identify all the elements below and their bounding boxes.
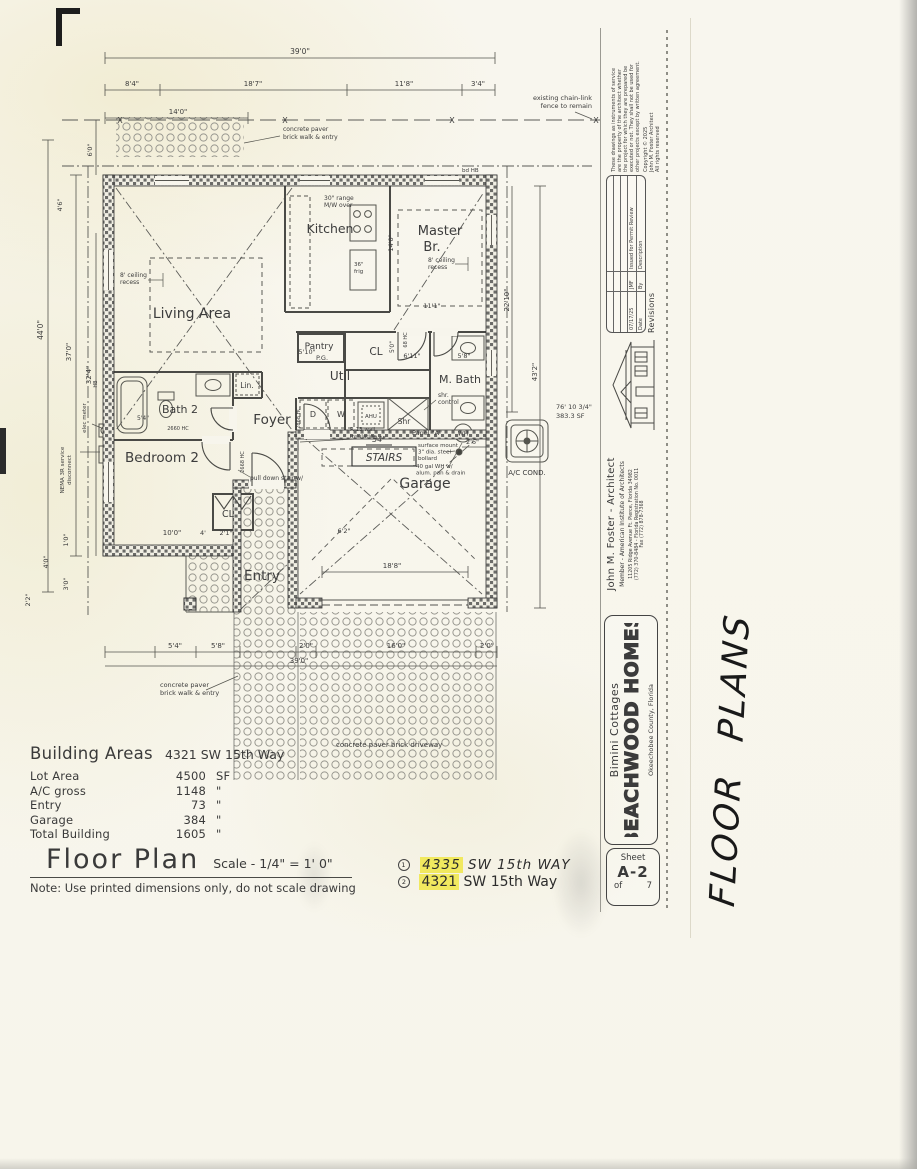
room-label-entry: Entry (244, 568, 280, 584)
revisions-empty-row (607, 176, 614, 332)
address-1-highlighted: 4335 (420, 857, 462, 873)
building-areas-title: Building Areas (30, 744, 153, 763)
room-label-closet-2: CL (222, 509, 235, 520)
building-area-row: Entry 73 " (30, 798, 370, 813)
dim-closet-2: 4' (200, 529, 206, 537)
note-recess-living-2: recess (120, 279, 139, 286)
room-label-master-1: Master (418, 224, 463, 239)
dim-bottom-d: 16'0" (387, 642, 406, 650)
copyright-line: other projects except by written agreeme… (636, 32, 642, 172)
dim-right-c: 76' 10 3/4" (556, 403, 592, 411)
dim-left-e: 32'4" (85, 366, 93, 385)
note-walk-top-2: brick walk & entry (283, 134, 338, 141)
label-ahu: AHU (365, 414, 377, 420)
note-frig-1: 36" (354, 262, 364, 268)
note-walk-bottom-2: brick walk & entry (160, 689, 219, 697)
note-fence-2: fence to remain (541, 102, 592, 110)
note-range-1: 30" range (324, 195, 354, 202)
door-tag: 2660 HC (167, 426, 189, 432)
dim-bedroom-width: 10'0" (163, 529, 182, 537)
note-shower-control-2: control (438, 399, 459, 406)
note-hb-left: HB (93, 380, 99, 388)
room-label-master-2: Br. (423, 240, 440, 255)
note-pulldown-stair: pull down stair w/ (250, 475, 304, 482)
room-label-master-bath: M. Bath (439, 373, 481, 386)
dim-closet-2b: 2'1" (219, 529, 232, 537)
svg-text:BEACHWOOD HOMES: BEACHWOOD HOMES (621, 623, 643, 837)
note-hb-top: bd HB (462, 168, 479, 174)
house-elevation-icon (604, 338, 660, 432)
dim-hall: 6'11" (403, 352, 420, 360)
area-value: 1605 (158, 827, 206, 842)
area-unit: SF (206, 769, 242, 784)
note-elec-meter: elec meter (82, 402, 88, 432)
fence-x-mark: X (593, 116, 599, 125)
architect-membership: Member - American Institute of Architect… (619, 436, 626, 612)
dim-top-d: 3'4" (471, 80, 485, 88)
label-ac-condenser: A/C COND. (508, 469, 546, 477)
floor-plan-note: Note: Use printed dimensions only, do no… (30, 881, 370, 895)
address-list: 1 4335 SW 15th WAY 2 4321 SW 15th Way (398, 857, 648, 890)
room-label-living-area: Living Area (153, 306, 231, 322)
dim-overall-width: 39'0" (290, 47, 310, 56)
dim-right-d: 383.3 SF (556, 412, 585, 420)
dim-left-b: 4'6" (56, 198, 64, 211)
area-label: A/C gross (30, 784, 158, 799)
building-area-row: Total Building 1605 " (30, 827, 370, 842)
note-water-heater-2: alum. pan & drain (416, 471, 466, 477)
dim-top-b: 18'7" (244, 80, 263, 88)
room-label-pg: P.G. (316, 354, 328, 362)
fence-x-mark: X (117, 116, 123, 125)
address-2-number-icon: 2 (398, 876, 410, 888)
area-value: 73 (158, 798, 206, 813)
revision-date: 07/17/25 (628, 291, 636, 332)
area-label: Garage (30, 813, 158, 828)
note-shower-control-1: shr. (438, 392, 449, 399)
dim-left-c: 44'0" (36, 320, 45, 340)
revisions-data-row: 07/17/25 JMF Issued for Permit Review (628, 176, 637, 332)
address-item-2: 2 4321 SW 15th Way (398, 874, 648, 890)
dim-left-h: 3'0" (62, 577, 70, 590)
dim-master: 11'1" (423, 302, 440, 310)
note-water-heater-1: 40 gal WH w/ (416, 464, 453, 470)
dim-left-g: 4'0" (42, 555, 50, 568)
label-water-heater: WH (458, 431, 468, 438)
dim-bath2: 5'4" (137, 415, 149, 422)
titleblock-divider (600, 28, 601, 912)
note-recess-living-1: 8' ceiling (120, 272, 147, 279)
dim-left-i: 2'2" (24, 593, 32, 606)
area-label: Total Building (30, 827, 158, 842)
room-label-shower: Shr (398, 417, 412, 426)
room-label-foyer: Foyer (253, 412, 291, 428)
revisions-empty-row (621, 176, 628, 332)
label-washer: W (337, 410, 345, 419)
label-dryer: D (310, 410, 316, 419)
area-unit: " (206, 798, 242, 813)
title-underline (30, 877, 352, 878)
dim-top-a: 8'4" (125, 80, 139, 88)
area-label: Entry (30, 798, 158, 813)
room-label-util: Util (330, 369, 350, 383)
dim-right-b: 43'2" (531, 363, 539, 382)
room-label-bedroom-2: Bedroom 2 (125, 450, 199, 466)
dim-closet: 5'0" (389, 341, 396, 353)
address-2-text: SW 15th Way (464, 874, 558, 890)
project-location: Okeechobee County, Florida (647, 620, 655, 840)
building-areas-address: 4321 SW 15th Way (165, 747, 284, 762)
revisions-empty-row (614, 176, 621, 332)
address-2-highlighted: 4321 (419, 874, 459, 890)
dim-bottom-b: 5'8" (211, 642, 225, 650)
site-lines (62, 112, 600, 615)
area-label: Lot Area (30, 769, 158, 784)
area-unit: " (206, 827, 242, 842)
copyright-line: All rights reserved (656, 32, 662, 172)
scanned-floor-plan-sheet: 39'0" 8'4" 18'7" 11'8" 3'4" 14'0" existi… (0, 0, 917, 1169)
building-area-row: A/C gross 1148 " (30, 784, 370, 799)
door-tag: 68 HC (403, 332, 409, 348)
revisions-col-date: Date (637, 291, 645, 332)
project-title-outline: BEACHWOOD HOMES (621, 623, 643, 837)
note-insulation-1: R-13 wall (350, 427, 376, 433)
titleblock-copyright: These drawings as instruments of service… (612, 32, 658, 172)
note-recess-master-1: 8' ceiling (428, 257, 455, 264)
room-label-kitchen: Kitchen (307, 221, 354, 236)
dim-right-a: 22'10" (503, 289, 511, 312)
area-value: 1148 (158, 784, 206, 799)
note-panel-a: Panel "A" (412, 429, 442, 437)
dim-top-e: 14'0" (169, 108, 188, 116)
area-value: 4500 (158, 769, 206, 784)
project-subtitle: Bimini Cottages (608, 620, 621, 840)
dim-foyer: 5'10" (298, 348, 315, 356)
revisions-col-by: By (637, 271, 645, 291)
note-nema-1: NEMA 3R service (60, 446, 66, 493)
room-label-garage: Garage (399, 476, 450, 492)
area-unit: " (206, 784, 242, 799)
dim-bottom-overall: 39'0" (290, 657, 309, 665)
architect-name: John M. Foster - Architect (606, 436, 618, 612)
address-1-text: SW 15th WAY (468, 857, 571, 873)
note-bollard-3: bollard (418, 456, 437, 462)
address-item-1: 1 4335 SW 15th WAY (398, 857, 648, 873)
perforation-line (666, 30, 668, 910)
dim-bottom-e: 2'0" (480, 642, 494, 650)
room-label-bath-2: Bath 2 (162, 403, 198, 416)
dim-right-e: 2'6" (466, 438, 479, 446)
dim-garage-door: 18'8" (383, 562, 402, 570)
note-bollard-2: 3" dia. steel (418, 450, 451, 456)
building-areas-block: Building Areas 4321 SW 15th Way Lot Area… (30, 744, 370, 895)
floor-plan-title: Floor Plan (46, 844, 199, 875)
revision-description: Issued for Permit Review (628, 176, 636, 271)
revisions-title: Revisions (647, 175, 656, 333)
dim-kitchen-depth: 14'0" (387, 234, 395, 251)
room-label-stairs-handwritten: STAIRS (366, 452, 403, 464)
architect-fax: Fax (772) 878-7368 (640, 436, 646, 612)
fence-x-mark: X (282, 116, 288, 125)
building-area-row: Lot Area 4500 SF (30, 769, 370, 784)
door-tag: 2668 HC (240, 451, 246, 473)
titleblock-architect: John M. Foster - Architect Member - Amer… (606, 436, 660, 612)
note-range-2: M/W over (324, 202, 353, 209)
area-value: 384 (158, 813, 206, 828)
room-label-linen: Lin. (240, 381, 253, 390)
room-label-closet: CL (369, 346, 382, 358)
floor-plan-scale: Scale - 1/4" = 1' 0" (213, 856, 332, 871)
titleblock-project: Bimini Cottages BEACHWOOD HOMES Okeechob… (604, 615, 660, 845)
dim-left-a: 6'0" (86, 143, 94, 156)
note-bollard-1: surface mount (418, 443, 459, 449)
dim-garage-a: 6'2" (337, 527, 350, 535)
building-area-row: Garage 384 " (30, 813, 370, 828)
revisions-header-row: Date By Description (637, 176, 645, 332)
fence-x-mark: X (449, 116, 455, 125)
note-walk-bottom-1: concrete paver (160, 681, 209, 689)
dim-bottom-a: 5'4" (168, 642, 182, 650)
note-fence-1: existing chain-link (533, 94, 592, 102)
note-insulation-2: insulation (350, 434, 377, 440)
dim-mbath: 5'8" (457, 352, 470, 360)
titleblock-revisions: 07/17/25 JMF Issued for Permit Review Da… (606, 175, 660, 333)
revision-by: JMF (628, 271, 636, 291)
dim-bottom-c: 2'0" (299, 642, 313, 650)
area-unit: " (206, 813, 242, 828)
revisions-col-description: Description (637, 176, 645, 271)
handwritten-floor-plans: FLOOR PLANS (703, 575, 806, 909)
dim-left-d: 37'0" (65, 343, 73, 362)
revisions-table: 07/17/25 JMF Issued for Permit Review Da… (606, 175, 646, 333)
address-1-number-icon: 1 (398, 859, 410, 871)
note-recess-master-2: recess (428, 264, 447, 271)
dim-top-c: 11'8" (395, 80, 414, 88)
note-walk-top-1: concrete paver (283, 126, 329, 133)
note-nema-2: disconnect (67, 454, 73, 485)
dim-left-f: 1'0" (62, 533, 70, 546)
door-tag: 2868 HC (296, 407, 302, 429)
note-frig-2: frig (354, 269, 363, 275)
